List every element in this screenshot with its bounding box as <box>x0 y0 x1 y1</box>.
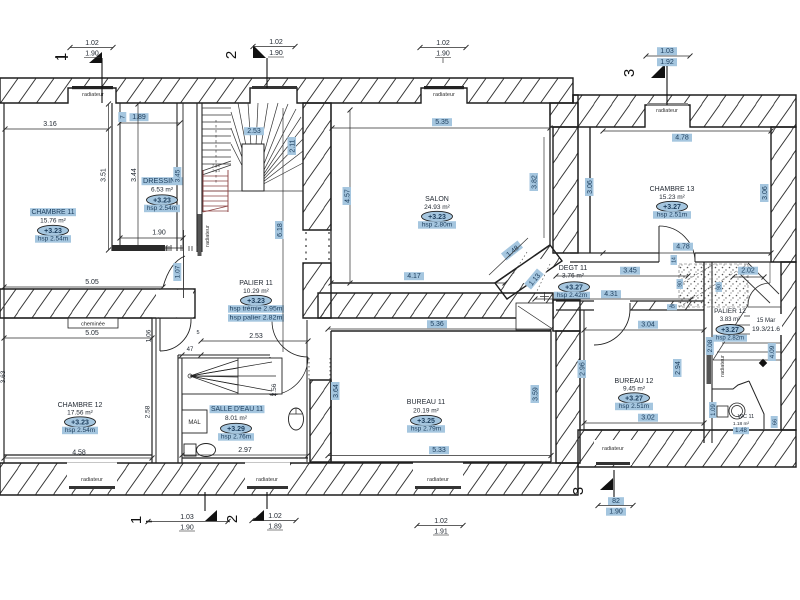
svg-text:19.3/21.6: 19.3/21.6 <box>752 327 781 333</box>
svg-text:CHAMBRE 11: CHAMBRE 11 <box>32 209 75 216</box>
svg-text:1: 1 <box>128 516 145 524</box>
svg-text:PALIER 12: PALIER 12 <box>714 308 746 315</box>
svg-text:+3.23: +3.23 <box>44 228 62 235</box>
svg-text:5: 5 <box>196 330 199 336</box>
svg-text:hsp palier 2.82m: hsp palier 2.82m <box>230 315 283 322</box>
svg-text:1.02: 1.02 <box>434 518 448 525</box>
svg-text:hsp 2.54m: hsp 2.54m <box>38 236 68 243</box>
svg-text:4.31: 4.31 <box>604 291 618 298</box>
svg-text:3.06: 3.06 <box>762 186 769 200</box>
svg-text:2.58: 2.58 <box>145 405 152 418</box>
svg-text:4.09: 4.09 <box>769 345 776 358</box>
svg-text:2.96: 2.96 <box>580 362 587 376</box>
svg-text:3.59: 3.59 <box>533 387 540 401</box>
svg-text:3.83 m²: 3.83 m² <box>720 317 740 323</box>
svg-text:1.07: 1.07 <box>175 265 182 278</box>
svg-text:1.02: 1.02 <box>85 40 99 47</box>
svg-text:+3.23: +3.23 <box>247 298 265 305</box>
svg-text:1.90: 1.90 <box>269 50 283 57</box>
svg-text:5.05: 5.05 <box>85 279 99 286</box>
svg-text:2.94: 2.94 <box>675 361 682 375</box>
svg-text:1.89: 1.89 <box>132 114 146 121</box>
svg-text:2: 2 <box>223 51 240 59</box>
svg-text:radiateur: radiateur <box>720 355 726 377</box>
svg-text:hsp 2.76m: hsp 2.76m <box>221 434 251 441</box>
svg-text:hsp 2.54m: hsp 2.54m <box>147 205 177 212</box>
svg-text:2.53: 2.53 <box>247 128 261 135</box>
svg-text:CHAMBRE 13: CHAMBRE 13 <box>650 186 695 193</box>
svg-text:2.11: 2.11 <box>290 139 297 152</box>
svg-text:1.02: 1.02 <box>436 40 450 47</box>
svg-text:+3.29: +3.29 <box>227 426 245 433</box>
svg-text:5.35: 5.35 <box>435 119 449 126</box>
svg-text:1.90: 1.90 <box>152 230 166 237</box>
svg-text:WC 11: WC 11 <box>738 414 754 420</box>
svg-text:BUREAU 11: BUREAU 11 <box>407 399 445 406</box>
svg-text:+3.23: +3.23 <box>153 198 171 205</box>
svg-text:2.97: 2.97 <box>238 447 252 454</box>
svg-text:3.45: 3.45 <box>623 268 637 275</box>
svg-text:+3.27: +3.27 <box>625 396 643 403</box>
svg-text:radiateur: radiateur <box>205 225 211 247</box>
svg-text:1.92: 1.92 <box>660 59 674 66</box>
svg-text:1.48: 1.48 <box>735 428 747 434</box>
svg-text:66: 66 <box>772 419 778 425</box>
svg-text:1.90: 1.90 <box>180 525 194 532</box>
svg-text:radiateur: radiateur <box>656 108 678 114</box>
svg-text:+3.27: +3.27 <box>565 285 583 292</box>
svg-text:20.19 m²: 20.19 m² <box>413 408 439 415</box>
svg-text:1.03: 1.03 <box>660 48 674 55</box>
svg-text:6.18: 6.18 <box>277 223 284 237</box>
svg-text:hsp 2.51m: hsp 2.51m <box>657 212 687 219</box>
svg-text:3.51: 3.51 <box>101 168 108 182</box>
svg-text:3.02: 3.02 <box>641 415 655 422</box>
svg-text:3.45: 3.45 <box>175 169 182 182</box>
svg-text:5.36: 5.36 <box>430 321 444 328</box>
svg-text:hsp 2.54m: hsp 2.54m <box>65 427 95 434</box>
svg-text:15.76 m²: 15.76 m² <box>40 218 66 225</box>
svg-text:1.09: 1.09 <box>711 404 717 416</box>
svg-text:4.58: 4.58 <box>72 450 86 457</box>
svg-text:3: 3 <box>621 69 638 77</box>
svg-text:SALLE D'EAU 11: SALLE D'EAU 11 <box>211 406 263 413</box>
svg-text:4.78: 4.78 <box>676 244 690 251</box>
svg-text:+3.23: +3.23 <box>71 420 89 427</box>
svg-text:hsp 2.82m: hsp 2.82m <box>716 336 744 342</box>
svg-text:hsp trémie 2.95m: hsp trémie 2.95m <box>230 306 283 313</box>
svg-text:17.56 m²: 17.56 m² <box>67 410 93 417</box>
svg-text:radiateur: radiateur <box>256 477 278 483</box>
svg-text:hsp 2.80m: hsp 2.80m <box>422 222 452 229</box>
svg-text:3.63: 3.63 <box>0 370 7 383</box>
svg-text:2.56: 2.56 <box>271 383 278 396</box>
svg-text:1.18 m²: 1.18 m² <box>733 421 750 427</box>
svg-text:4.78: 4.78 <box>675 135 689 142</box>
svg-text:1.02: 1.02 <box>269 39 283 46</box>
svg-text:1.89: 1.89 <box>268 524 282 531</box>
svg-text:24.93 m²: 24.93 m² <box>424 204 450 211</box>
svg-text:4.17: 4.17 <box>407 273 421 280</box>
svg-text:3.16: 3.16 <box>43 121 57 128</box>
svg-text:4.57: 4.57 <box>345 189 352 203</box>
svg-text:radiateur: radiateur <box>433 92 455 98</box>
svg-text:PALIER 11: PALIER 11 <box>239 280 273 287</box>
svg-text:+3.23: +3.23 <box>428 214 446 221</box>
svg-text:1.06: 1.06 <box>146 329 153 342</box>
svg-text:3.44: 3.44 <box>131 168 138 182</box>
svg-text:1.03: 1.03 <box>180 514 194 521</box>
svg-text:hsp 2.79m: hsp 2.79m <box>411 426 441 433</box>
svg-text:2.08: 2.08 <box>707 339 714 352</box>
svg-text:82: 82 <box>612 498 620 505</box>
svg-text:SALON: SALON <box>425 196 449 203</box>
svg-text:1.90: 1.90 <box>436 51 450 58</box>
svg-text:radiateur: radiateur <box>82 92 104 98</box>
svg-text:+3.27: +3.27 <box>721 327 739 334</box>
svg-text:15 Mar: 15 Mar <box>757 318 776 324</box>
svg-text:15.23 m²: 15.23 m² <box>659 194 685 201</box>
svg-text:hsp 2.51m: hsp 2.51m <box>619 403 649 410</box>
svg-text:3.04: 3.04 <box>641 322 655 329</box>
svg-text:hsp 2.42m: hsp 2.42m <box>557 292 587 299</box>
svg-text:BUREAU 12: BUREAU 12 <box>615 378 654 385</box>
svg-text:5.05: 5.05 <box>85 330 99 337</box>
svg-text:3.82: 3.82 <box>532 175 539 189</box>
svg-text:cheminée: cheminée <box>81 322 105 328</box>
svg-text:DEGT 11: DEGT 11 <box>559 265 588 272</box>
svg-text:radiateur: radiateur <box>427 477 449 483</box>
svg-text:7: 7 <box>120 115 127 119</box>
svg-text:1.91: 1.91 <box>434 529 448 536</box>
svg-text:radiateur: radiateur <box>602 446 624 452</box>
svg-text:2: 2 <box>224 515 241 523</box>
svg-text:10.29 m²: 10.29 m² <box>243 288 269 295</box>
svg-text:1.90: 1.90 <box>85 51 99 58</box>
svg-text:47: 47 <box>187 347 194 353</box>
svg-text:2.13: 2.13 <box>212 168 221 173</box>
svg-text:1.02: 1.02 <box>268 513 282 520</box>
svg-text:2.53: 2.53 <box>249 333 263 340</box>
svg-text:6.53 m²: 6.53 m² <box>151 187 174 194</box>
svg-text:3: 3 <box>570 487 587 495</box>
svg-text:1.90: 1.90 <box>609 509 623 516</box>
svg-text:CHAMBRE 12: CHAMBRE 12 <box>58 402 103 409</box>
svg-text:+3.25: +3.25 <box>417 418 435 425</box>
svg-text:radiateur: radiateur <box>81 477 103 483</box>
svg-text:90: 90 <box>717 284 723 290</box>
svg-text:9.45 m²: 9.45 m² <box>623 386 646 393</box>
svg-text:45: 45 <box>669 304 675 310</box>
svg-text:MAL: MAL <box>188 420 201 426</box>
svg-text:+3.27: +3.27 <box>663 204 681 211</box>
svg-text:14: 14 <box>672 257 678 263</box>
svg-text:90: 90 <box>678 281 684 287</box>
svg-text:8.01 m²: 8.01 m² <box>225 415 248 422</box>
svg-text:3.64: 3.64 <box>333 384 340 398</box>
svg-text:5.33: 5.33 <box>432 447 446 454</box>
svg-text:2.02: 2.02 <box>741 268 755 275</box>
svg-text:3.06: 3.06 <box>587 180 594 194</box>
